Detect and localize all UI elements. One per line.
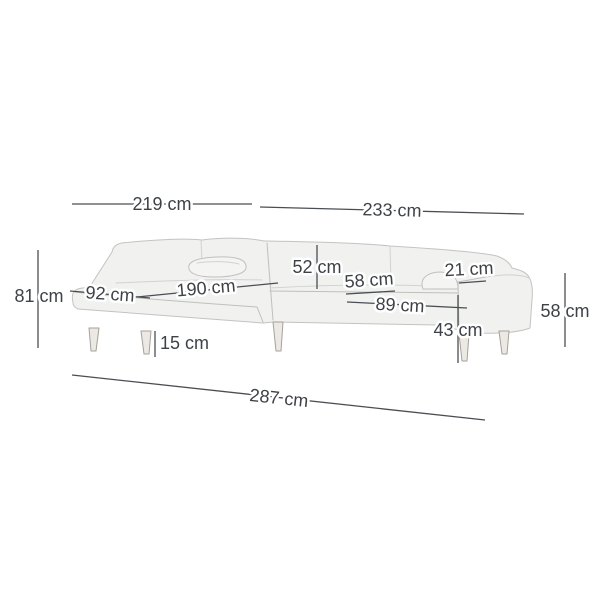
dim-label-width-total: 287 cm — [249, 385, 310, 411]
dim-label-height-seat: 43 cm — [433, 320, 482, 340]
dim-label-height-back-above-seat: 52 cm — [292, 257, 341, 277]
dim-label-depth-seat: 58 cm — [344, 268, 394, 291]
dim-label-depth-seat-with-armrest: 89 cm — [375, 294, 425, 317]
dim-label-height-armrest: 58 cm — [540, 301, 589, 321]
sofa-leg-5 — [499, 331, 509, 354]
lumbar-pillow-left — [189, 257, 246, 277]
sofa-silhouette — [72, 238, 532, 333]
dim-label-height-legs: 15 cm — [160, 333, 209, 353]
dim-label-width-right: 233 cm — [362, 199, 422, 221]
dim-label-width-left: 219 cm — [132, 194, 191, 214]
dim-label-depth-chaise: 92 cm — [85, 282, 135, 305]
sofa-leg-1 — [89, 328, 99, 351]
diagram-canvas: 219 cm 233 cm 81 cm 92 cm 190 cm 52 cm 5… — [0, 0, 600, 600]
dim-label-width-armrest: 21 cm — [444, 258, 494, 281]
dimension-diagram: 219 cm 233 cm 81 cm 92 cm 190 cm 52 cm 5… — [0, 0, 600, 600]
sofa-leg-3 — [273, 322, 283, 351]
dim-label-height-back: 81 cm — [14, 286, 63, 306]
sofa-leg-2 — [141, 331, 151, 354]
